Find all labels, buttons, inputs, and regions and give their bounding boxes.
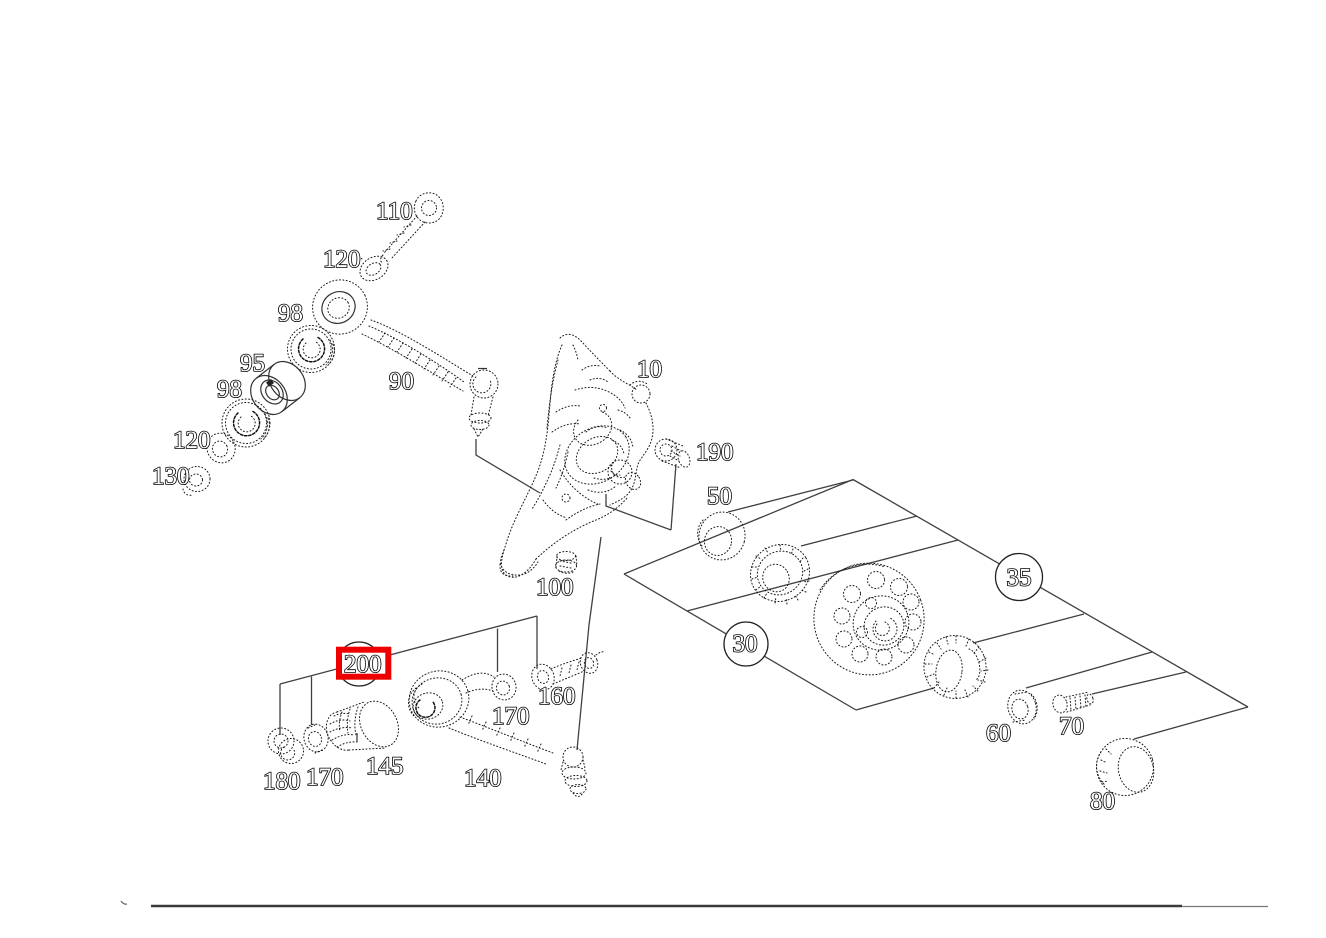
svg-text:170: 170: [306, 764, 344, 791]
svg-text:145: 145: [366, 753, 404, 780]
svg-text:100: 100: [536, 574, 574, 601]
svg-text:200: 200: [344, 651, 382, 678]
svg-text:160: 160: [538, 683, 576, 710]
svg-text:98: 98: [278, 300, 303, 327]
svg-text:180: 180: [263, 768, 301, 795]
svg-text:140: 140: [464, 765, 502, 792]
svg-text:170: 170: [492, 703, 530, 730]
svg-text:190: 190: [696, 439, 734, 466]
svg-text:95: 95: [240, 350, 265, 377]
svg-text:30: 30: [733, 631, 758, 658]
svg-text:50: 50: [707, 483, 732, 510]
svg-text:10: 10: [637, 356, 662, 383]
svg-text:35: 35: [1007, 565, 1032, 592]
svg-text:90: 90: [389, 368, 414, 395]
svg-text:120: 120: [323, 246, 361, 273]
svg-text:80: 80: [1090, 788, 1115, 815]
svg-text:60: 60: [986, 720, 1011, 747]
svg-text:98: 98: [217, 376, 242, 403]
svg-text:130: 130: [152, 463, 190, 490]
svg-text:120: 120: [173, 427, 211, 454]
svg-text:70: 70: [1059, 713, 1084, 740]
svg-text:110: 110: [376, 198, 413, 225]
